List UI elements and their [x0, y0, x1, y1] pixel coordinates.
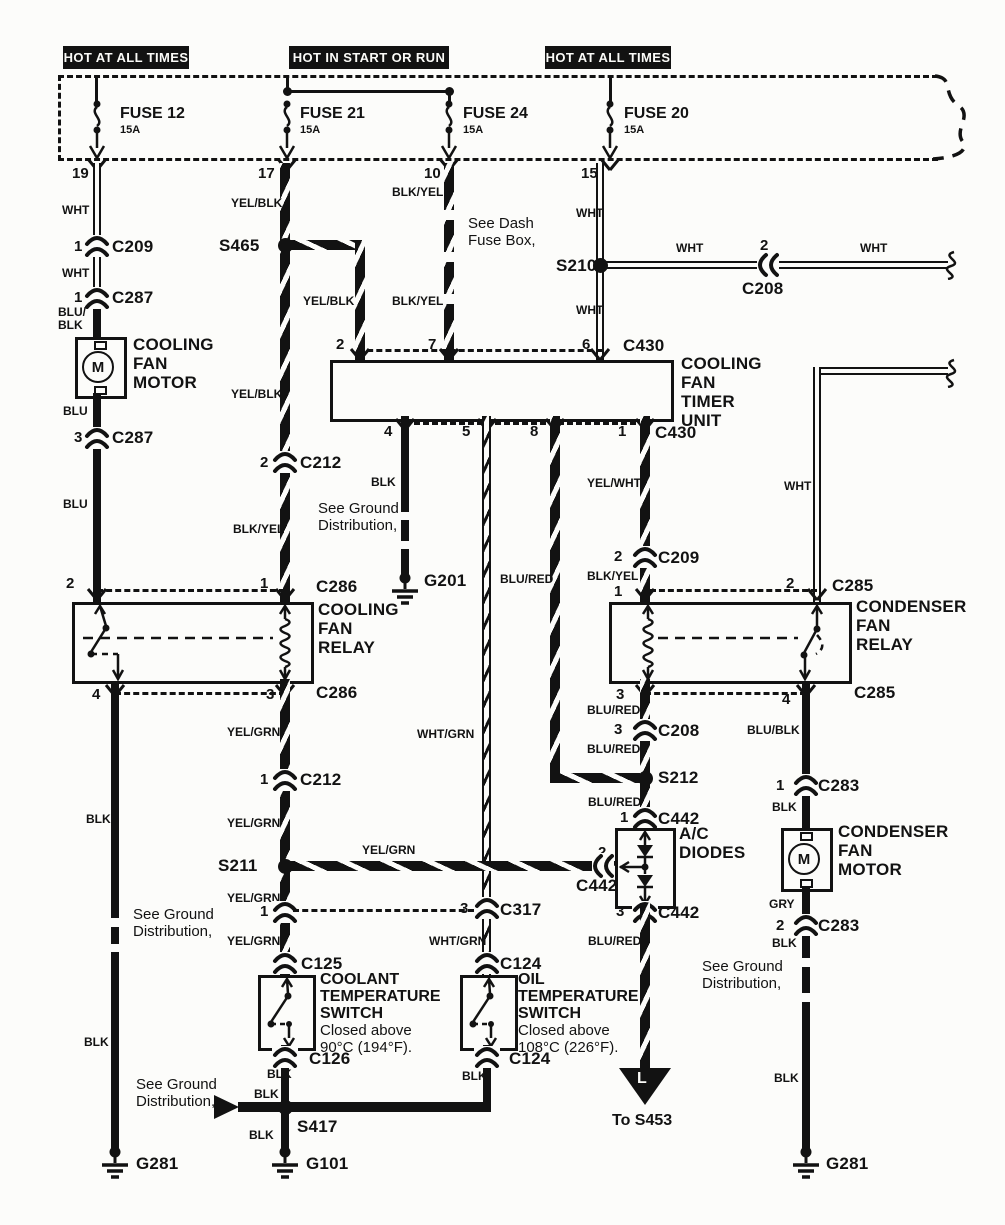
wire-break: [443, 210, 455, 220]
pin-2: 2: [336, 336, 344, 353]
connector-c442: C442: [658, 903, 699, 923]
ground-g281-label: G281: [136, 1154, 178, 1174]
bus-junction-dot: [445, 87, 454, 96]
cooling-fan-relay-internals: [75, 605, 311, 681]
connector-c212: C212: [300, 453, 341, 473]
fuse20-label: FUSE 20: [624, 105, 689, 123]
pin-3: 3: [616, 903, 624, 920]
condenser-fan-relay-label: CONDENSER FAN RELAY: [856, 597, 966, 654]
cooling-fan-motor-label: COOLING FAN MOTOR: [133, 335, 214, 392]
splice-s417-label: S417: [297, 1117, 338, 1137]
bus-junction-dot: [283, 87, 292, 96]
pin-1: 1: [618, 423, 626, 440]
wire-label: BLU/ BLK: [58, 306, 86, 332]
fuse21-24-bus: [287, 90, 450, 93]
torn-wire-end: [938, 250, 964, 280]
fuse12-rating: 15A: [120, 124, 140, 136]
connector-c287: C287: [112, 428, 153, 448]
connector-icon-c283: [793, 774, 819, 801]
wire-label: WHT: [576, 304, 603, 317]
fuse24-rating: 15A: [463, 124, 483, 136]
pin-1: 1: [74, 289, 82, 306]
see-ground-distribution-note: See Ground Distribution,: [702, 958, 783, 992]
wire-yelblk-branch-v: [355, 240, 365, 362]
wire-label: BLU/RED: [587, 704, 640, 717]
fuse12-icon: [87, 100, 107, 167]
pin-5: 5: [462, 423, 470, 440]
wire-blured-s453: [640, 903, 650, 1070]
offpage-connector-letter: L: [637, 1070, 647, 1088]
wiring-diagram: HOT AT ALL TIMES HOT IN START OR RUN HOT…: [0, 0, 1005, 1225]
wire-label: BLK: [462, 1070, 487, 1083]
wire-break: [110, 944, 120, 952]
wire-label: BLK: [267, 1068, 292, 1081]
wire-label: BLK: [249, 1129, 274, 1142]
fuse20-rating: 15A: [624, 124, 644, 136]
pin-2: 2: [66, 575, 74, 592]
pin-3: 3: [614, 721, 622, 738]
wire-label: BLK/YEL: [587, 570, 638, 583]
wire-label: BLU/RED: [588, 935, 641, 948]
splice-s212-label: S212: [658, 768, 699, 788]
pin-17: 17: [258, 165, 275, 182]
wire-label: YEL/GRN: [227, 935, 280, 948]
fuse24-icon: [439, 100, 459, 167]
condenser-fan-relay-internals: [612, 605, 849, 681]
pin-2: 2: [776, 917, 784, 934]
splice-s417-dot: [278, 1100, 293, 1115]
wire-break: [443, 252, 455, 262]
connector-c124: C124: [509, 1049, 550, 1069]
wire-label: BLK: [772, 801, 797, 814]
splice-s212-dot: [638, 771, 653, 786]
see-dash-fuse-box-note: See Dash Fuse Box,: [468, 215, 536, 249]
splice-s211-label: S211: [218, 856, 258, 876]
condenser-fan-motor-box: M: [781, 828, 833, 892]
wire-label: BLU/RED: [500, 573, 553, 586]
wire-break: [443, 294, 455, 304]
connector-c287: C287: [112, 288, 153, 308]
fuse21-rating: 15A: [300, 124, 320, 136]
connector-c283: C283: [818, 776, 859, 796]
pin-7: 7: [428, 336, 436, 353]
connector-c430-top-link: [358, 349, 602, 352]
pin-4: 4: [782, 691, 790, 708]
connector-c317-link: [293, 909, 474, 912]
wire-label: BLK/YEL: [392, 186, 443, 199]
condenser-fan-motor-label: CONDENSER FAN MOTOR: [838, 822, 948, 879]
connector-c286-bottom-link: [115, 692, 285, 695]
pin-1: 1: [620, 809, 628, 826]
wire-yelblk-branch-h: [285, 240, 365, 250]
wire-yelgrn-s211-h: [285, 861, 615, 871]
connector-c317: C317: [500, 900, 541, 920]
pin-4: 4: [92, 686, 100, 703]
wire-label: BLK/YEL: [392, 295, 443, 308]
oil-temp-switch-label: OIL TEMPERATURE SWITCH: [518, 971, 639, 1022]
pin-3: 3: [616, 686, 624, 703]
wire-label: BLU/BLK: [747, 724, 800, 737]
ground-g101-label: G101: [306, 1154, 348, 1174]
to-s453-label: To S453: [612, 1112, 672, 1130]
wire-label: BLK: [86, 813, 111, 826]
wire-label: YEL/WHT: [587, 477, 641, 490]
cooling-fan-relay-label: COOLING FAN RELAY: [318, 600, 399, 657]
wire-label: YEL/GRN: [227, 726, 280, 739]
wire-label: BLK: [774, 1072, 799, 1085]
wire-blured-p8: [550, 416, 560, 773]
wire-blk-left: [111, 681, 119, 1152]
ground-icon-g281-right: [789, 1146, 823, 1187]
fuse24-label: FUSE 24: [463, 105, 528, 123]
motor-brush: [94, 386, 107, 395]
wire-wht-right-h: [813, 367, 948, 375]
wire-label: BLU/RED: [587, 743, 640, 756]
motor-letter: M: [798, 851, 811, 868]
wire-label: WHT/GRN: [417, 728, 474, 741]
pin-1: 1: [260, 903, 268, 920]
connector-icon-c209: [84, 235, 110, 262]
splice-s211-dot: [278, 859, 293, 874]
ground-g201-label: G201: [424, 571, 466, 591]
wire-label: WHT: [784, 480, 811, 493]
connector-icon-c287: [84, 287, 110, 314]
wire-label: WHT: [676, 242, 703, 255]
wire-label: WHT: [576, 207, 603, 220]
wire-break: [801, 958, 811, 967]
connector-c285: C285: [832, 576, 873, 596]
wire-break: [400, 541, 410, 549]
pin-3: 3: [460, 900, 468, 917]
motor-brush: [800, 832, 813, 841]
pin-3: 3: [74, 429, 82, 446]
cooling-fan-timer-unit-box: [330, 360, 674, 422]
oil-temp-switch-internals: [463, 978, 515, 1048]
wire-label: BLU: [63, 498, 88, 511]
see-ground-distribution-note: See Ground Distribution,: [133, 906, 214, 940]
pin-2: 2: [614, 548, 622, 565]
motor-symbol: M: [788, 843, 820, 875]
wire-label: BLK/YEL: [233, 523, 284, 536]
wire-label: WHT: [62, 267, 89, 280]
pin-4: 4: [384, 423, 392, 440]
wire-label: BLU: [63, 405, 88, 418]
wire-label: BLK: [254, 1088, 279, 1101]
connector-c212: C212: [300, 770, 341, 790]
wire-label: YEL/GRN: [362, 844, 415, 857]
connector-c209: C209: [658, 548, 699, 568]
connector-c286: C286: [316, 683, 357, 703]
connector-icon-c317: [474, 897, 500, 924]
connector-c208: C208: [658, 721, 699, 741]
continuation-arrow-icon: [214, 1095, 239, 1119]
connector-icon-c287: [84, 427, 110, 454]
fuse21-label: FUSE 21: [300, 105, 365, 123]
wire-break: [400, 512, 410, 520]
ac-diodes-label: A/C DIODES: [679, 824, 745, 862]
cooling-fan-motor-box: M: [75, 337, 127, 399]
torn-wire-end: [938, 358, 964, 388]
wire-blu: [93, 393, 101, 604]
splice-s210-label: S210: [556, 256, 597, 276]
coolant-temp-switch-label: COOLANT TEMPERATURE SWITCH: [320, 971, 441, 1022]
pin-2: 2: [260, 454, 268, 471]
wire-label: YEL/BLK: [231, 197, 282, 210]
ground-icon-g281-left: [98, 1146, 132, 1187]
banner-hot-at-all-times-left: HOT AT ALL TIMES: [63, 46, 189, 69]
connector-c285: C285: [854, 683, 895, 703]
connector-icon-c212: [272, 451, 298, 478]
pin-1: 1: [776, 777, 784, 794]
fuse-box-torn-edge: [923, 68, 978, 166]
wire-label: YEL/GRN: [227, 817, 280, 830]
wire-label: WHT: [62, 204, 89, 217]
banner-hot-in-start-or-run: HOT IN START OR RUN: [289, 46, 449, 69]
connector-c208: C208: [742, 279, 783, 299]
motor-brush: [94, 341, 107, 350]
pin-1: 1: [260, 771, 268, 788]
pin-1: 1: [260, 575, 268, 592]
wire-yelwht: [640, 416, 650, 561]
ground-icon-g101: [268, 1146, 302, 1187]
fuse12-label: FUSE 12: [120, 105, 185, 123]
wire-yelblk: [280, 163, 290, 604]
wire-whtgrn: [482, 416, 491, 977]
ac-diodes-internals: [618, 831, 673, 906]
connector-c442: C442: [576, 876, 617, 896]
pin-1: 1: [74, 238, 82, 255]
wire-wht-right-v: [813, 367, 821, 604]
wire-blkyel-f24: [444, 163, 454, 362]
wire-label: WHT/GRN: [429, 935, 486, 948]
wire-break: [801, 993, 811, 1002]
see-ground-distribution-note: See Ground Distribution,: [136, 1076, 217, 1110]
wire-blk-g201: [401, 416, 409, 576]
pin-1: 1: [614, 583, 622, 600]
wire-break: [110, 918, 120, 927]
connector-c286: C286: [316, 577, 357, 597]
connector-c283: C283: [818, 916, 859, 936]
connector-c430: C430: [623, 336, 664, 356]
wire-label: BLK: [772, 937, 797, 950]
wire-yelgrn: [280, 679, 290, 977]
pin-2: 2: [786, 575, 794, 592]
connector-icon-c317: [272, 901, 298, 928]
splice-s210-dot: [593, 258, 608, 273]
wire-label: BLK: [84, 1036, 109, 1049]
pin-8: 8: [530, 423, 538, 440]
fuse21-icon: [277, 100, 297, 167]
wire-blublk-right: [802, 681, 810, 830]
fuse20-icon: [600, 100, 620, 167]
connector-c430-bottom-link: [405, 422, 645, 425]
splice-s465-label: S465: [219, 236, 260, 256]
see-ground-distribution-note: See Ground Distribution,: [318, 500, 399, 534]
connector-c126: C126: [309, 1049, 350, 1069]
motor-symbol: M: [82, 351, 114, 383]
wire-blured-p8-h: [550, 773, 650, 783]
wire-wht-left: [93, 163, 101, 299]
ground-g281-label: G281: [826, 1154, 868, 1174]
cooling-fan-timer-unit-label: COOLING FAN TIMER UNIT: [681, 354, 762, 430]
wire-blk-bottom-h: [238, 1102, 491, 1112]
wire-label: BLK: [371, 476, 396, 489]
wire-label: GRY: [769, 898, 795, 911]
banner-hot-at-all-times-right: HOT AT ALL TIMES: [545, 46, 671, 69]
motor-letter: M: [92, 359, 105, 376]
connector-icon-c212: [272, 769, 298, 796]
wire-label: YEL/BLK: [303, 295, 354, 308]
coolant-temp-switch-internals: [261, 978, 313, 1048]
wire-label: YEL/BLK: [231, 388, 282, 401]
connector-c430: C430: [655, 423, 696, 443]
wire-label: WHT: [860, 242, 887, 255]
connector-c209: C209: [112, 237, 153, 257]
connector-c286-top-link: [97, 589, 285, 592]
